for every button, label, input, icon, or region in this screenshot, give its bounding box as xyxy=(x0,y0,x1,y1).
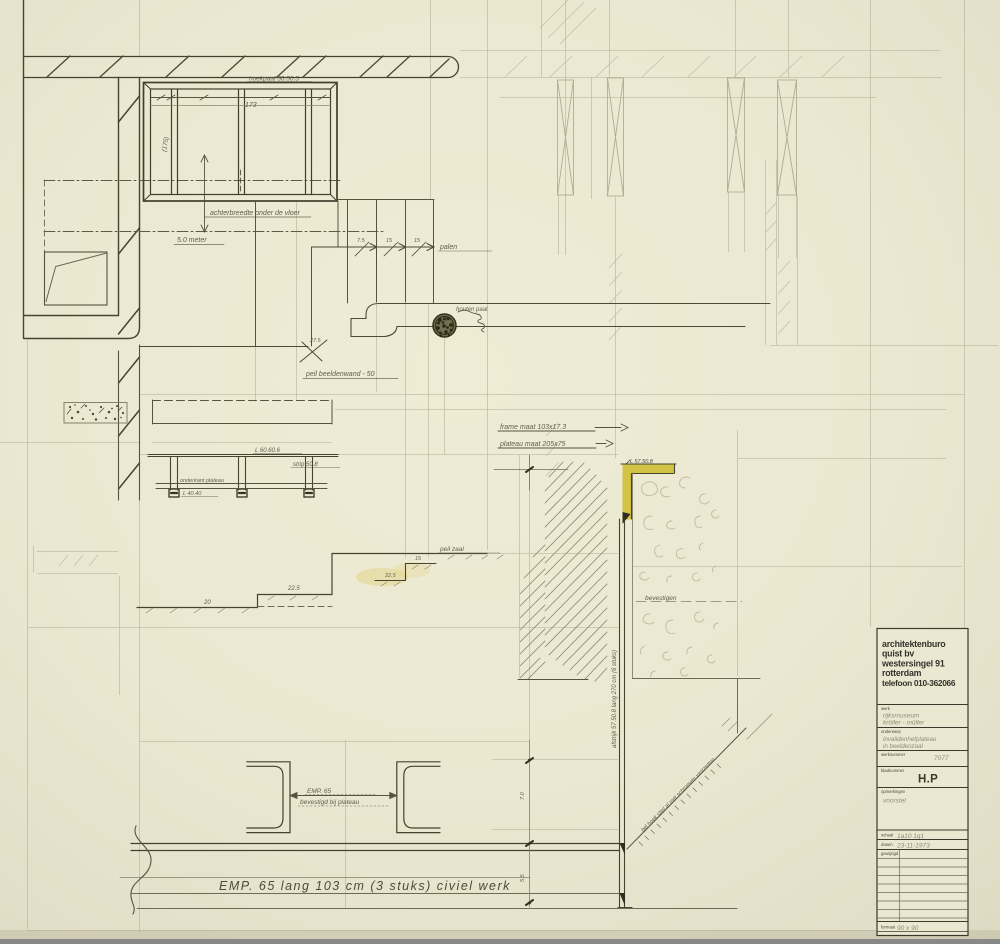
svg-text:schaal: schaal xyxy=(881,833,893,838)
svg-text:7.0: 7.0 xyxy=(520,791,526,800)
svg-text:plateau maat 205x75: plateau maat 205x75 xyxy=(499,441,565,448)
svg-text:1a10 1g1: 1a10 1g1 xyxy=(897,833,924,840)
svg-text:afstrijk 57.50.8 lang 270 cm: afstrijk 57.50.8 lang 270 cm (6 stuks) xyxy=(612,650,618,748)
svg-text:opmerkingen: opmerkingen xyxy=(881,789,906,794)
svg-text:frame maat 103x17.3: frame maat 103x17.3 xyxy=(500,424,566,431)
svg-text:22.5: 22.5 xyxy=(287,586,300,592)
svg-text:7077: 7077 xyxy=(934,755,949,762)
svg-text:L 57.50.8: L 57.50.8 xyxy=(630,459,654,465)
svg-text:peil zaal: peil zaal xyxy=(439,546,464,553)
svg-text:voorstel: voorstel xyxy=(883,798,906,805)
svg-text:27.5: 27.5 xyxy=(309,338,322,344)
svg-text:bevestigen: bevestigen xyxy=(645,595,677,602)
svg-text:EMP. 65: EMP. 65 xyxy=(307,788,331,795)
svg-text:quist bv: quist bv xyxy=(882,649,914,659)
svg-text:bevestigd bij plateau: bevestigd bij plateau xyxy=(300,799,360,806)
svg-text:in beeldenzaal: in beeldenzaal xyxy=(883,743,924,750)
svg-text:rotterdam: rotterdam xyxy=(882,668,922,678)
svg-text:telefoon 010-362066: telefoon 010-362066 xyxy=(882,678,956,688)
svg-text:15: 15 xyxy=(414,238,421,244)
svg-text:EMP. 65 lang 103 cm (3 stuks: EMP. 65 lang 103 cm (3 stuks) civiel wer… xyxy=(219,879,511,893)
svg-text:westersingel 91: westersingel 91 xyxy=(881,658,945,668)
svg-text:formaat: formaat xyxy=(881,925,896,930)
svg-text:bladnummer: bladnummer xyxy=(881,768,905,773)
svg-text:173: 173 xyxy=(245,102,257,109)
svg-text:rijksmuseum: rijksmuseum xyxy=(883,713,920,720)
svg-text:23-11-1973: 23-11-1973 xyxy=(896,843,930,850)
svg-text:15: 15 xyxy=(415,556,422,562)
svg-text:architektenburo: architektenburo xyxy=(882,639,946,649)
svg-text:datum: datum xyxy=(881,842,893,847)
svg-text:gewijzigd: gewijzigd xyxy=(881,851,899,856)
svg-text:7.5: 7.5 xyxy=(357,238,366,244)
svg-text:H.P: H.P xyxy=(918,774,938,786)
svg-text:onderwerp: onderwerp xyxy=(881,729,901,734)
svg-text:onderkant plateau: onderkant plateau xyxy=(180,478,224,484)
svg-text:werknummer: werknummer xyxy=(881,752,906,757)
svg-text:22.5: 22.5 xyxy=(384,573,397,579)
svg-text:90 x 90: 90 x 90 xyxy=(897,925,919,932)
svg-text:15: 15 xyxy=(386,238,393,244)
svg-text:5.5: 5.5 xyxy=(520,873,526,882)
svg-text:L 40.40: L 40.40 xyxy=(183,491,202,497)
svg-text:peil beeldenwand - 50: peil beeldenwand - 50 xyxy=(305,371,375,378)
svg-text:L 60.60.6: L 60.60.6 xyxy=(255,448,281,454)
svg-text:20: 20 xyxy=(203,600,211,606)
svg-text:palen: palen xyxy=(439,244,457,251)
svg-text:invalidenhefplateau: invalidenhefplateau xyxy=(883,736,937,743)
svg-text:kröller - müller: kröller - müller xyxy=(883,720,925,727)
svg-text:werk: werk xyxy=(881,706,891,711)
svg-text:houten paal: houten paal xyxy=(456,307,488,313)
svg-text:5.0 meter: 5.0 meter xyxy=(177,237,207,244)
